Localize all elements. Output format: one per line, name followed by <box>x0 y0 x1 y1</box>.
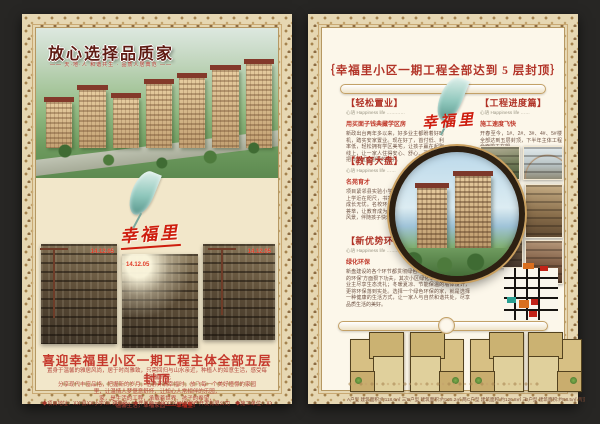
photo-date: 14.12.05 <box>91 249 114 255</box>
bottom-flourish-ornament <box>346 381 540 387</box>
photo-date: 14.12.05 <box>248 249 271 255</box>
construction-photo: 14.12.05 <box>122 254 198 348</box>
construction-photo: 14.12.05 <box>41 244 117 344</box>
construction-photo: 14.12.05 <box>203 244 275 340</box>
section-heading: 【教育大盘】 <box>346 154 408 167</box>
brand-script-calligraphy: 幸福里 <box>119 218 181 250</box>
map-block-orange <box>519 300 529 308</box>
section-lead: 施工速度飞快 <box>480 119 562 128</box>
front-footer-contacts: ◆项目地址：XX 县XX小学XX 路口处 ◆开发商：XXXXXXX房地产开发有限… <box>42 400 272 407</box>
photo-date: 14.12.05 <box>126 262 149 268</box>
section-subheading: 心语 Happiness life …… <box>346 168 408 174</box>
progress-photo <box>523 146 563 180</box>
front-subtitle: —— 天·地·人 和谐共生 · 品质人居典范 —— <box>50 61 172 68</box>
flyer-back-page: ｛幸福里小区一期工程全部达到 5 层封顶｝ 幸福里 【轻松置业】 心语 Happ… <box>308 14 578 404</box>
section-progress: 【工程进度篇】 心语 Happiness life …… 施工速度飞快 开春至今… <box>480 96 562 151</box>
section-heading: 【轻松置业】 <box>346 96 444 109</box>
divider-ornament-icon <box>438 317 455 334</box>
poem-line: 里，让温情人梦惬意舒怀，让知心人常相伴的乐园， <box>46 389 268 396</box>
map-block-orange <box>523 263 534 269</box>
building-photo-circle <box>389 146 525 282</box>
map-block-red <box>540 266 548 271</box>
back-inner-panel: ｛幸福里小区一期工程全部达到 5 层封顶｝ 幸福里 【轻松置业】 心语 Happ… <box>321 27 565 391</box>
map-block-teal <box>507 297 516 303</box>
floor-plan-caption: C户型 建筑面积:约126.8㎡ 三室两厅两卫 <box>467 397 527 403</box>
floor-plan-caption: B户型 建筑面积:约105.2㎡ 两室两厅一卫 <box>407 397 467 403</box>
flyer-canvas: 放心选择品质家 —— 天·地·人 和谐共生 · 品质人居典范 —— 幸福里 14… <box>0 0 600 424</box>
map-block-red <box>531 299 538 305</box>
poem-line: 置身于温馨的雅居风尚，居于时尚雅致，只需回归与山水亲近，种植人的如意生活，感受每… <box>46 368 268 382</box>
front-inner-panel: 放心选择品质家 —— 天·地·人 和谐共生 · 品质人居典范 —— 幸福里 14… <box>35 27 279 391</box>
flyer-front-page: 放心选择品质家 —— 天·地·人 和谐共生 · 品质人居典范 —— 幸福里 14… <box>22 14 292 404</box>
brand-script-calligraphy: 幸福里 <box>421 108 476 133</box>
map-block-red <box>529 311 537 317</box>
section-subheading: 心语 Happiness life …… <box>480 110 562 116</box>
landscape-graphic <box>395 248 519 276</box>
progress-photo <box>525 184 563 238</box>
section-heading: 【工程进度篇】 <box>480 96 562 109</box>
floor-plan-caption: D户型 建筑面积:约98.5㎡ 两室两厅一卫 <box>525 397 585 403</box>
aerial-rendering-photo: 放心选择品质家 —— 天·地·人 和谐共生 · 品质人居典范 —— <box>36 28 278 178</box>
floor-plan-caption: A户型 建筑面积:约118.6㎡ 三室两厅一卫 <box>347 397 407 403</box>
bottom-flourish-ornament <box>60 381 254 387</box>
